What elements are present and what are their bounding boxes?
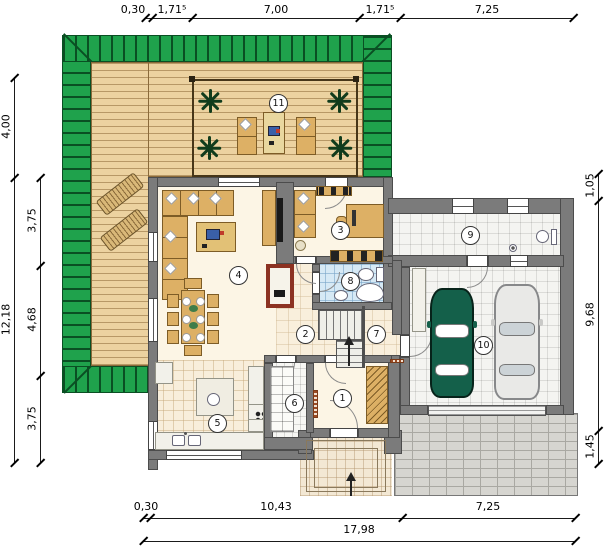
dim-label: 1,71⁵	[358, 3, 402, 16]
wall	[400, 405, 428, 415]
wall	[388, 355, 400, 438]
dim-label: 10,43	[254, 500, 298, 513]
door-office-hall	[296, 256, 316, 264]
bookshelf	[330, 250, 383, 262]
wardrobe	[366, 366, 388, 424]
fridge	[155, 362, 173, 384]
room-label-11: 11	[269, 94, 288, 113]
car-windshield	[499, 322, 535, 336]
room-label-8: 8	[341, 272, 360, 291]
car-green	[430, 288, 474, 398]
plate	[196, 315, 205, 324]
floor-garage	[404, 259, 564, 409]
car-mirror	[473, 321, 477, 328]
dim-label: 1,45	[584, 425, 597, 469]
driveway	[394, 413, 578, 496]
potted-plant	[328, 136, 352, 160]
radiator	[313, 390, 318, 418]
wall	[392, 260, 402, 335]
stove	[248, 404, 264, 420]
door-utility	[467, 255, 488, 267]
dimension-line-total	[143, 541, 575, 542]
kitchen-sink	[188, 435, 201, 446]
dim-label: 1,05	[584, 164, 597, 208]
dim-label: 7,00	[254, 3, 298, 16]
window	[452, 198, 474, 214]
room-label-10: 10	[474, 336, 493, 355]
dim-label: 0,30	[124, 500, 168, 513]
stair-railing	[362, 306, 365, 368]
plate	[182, 297, 191, 306]
dim-label: 3,75	[26, 397, 39, 441]
dimension-line-bottom	[143, 518, 575, 519]
bidet	[334, 290, 348, 301]
room-label-9: 9	[461, 226, 480, 245]
window	[507, 198, 529, 214]
desk-monitor	[352, 210, 356, 226]
small-object	[269, 141, 274, 145]
car-mirror	[539, 319, 543, 326]
room-label-3: 3	[331, 221, 350, 240]
dim-label: 9,68	[584, 293, 597, 337]
dimension-line-left-inner	[40, 177, 41, 463]
entrance-arrow-head	[346, 472, 356, 481]
tv-screen	[277, 198, 283, 242]
car-body	[430, 288, 474, 398]
car-body	[494, 284, 540, 400]
floor-plan-canvas: 1 2 3 4 5 6 7 8 9 10 11 0,30 1,71⁵ 7,00 …	[0, 0, 609, 548]
radiator	[390, 359, 404, 363]
dining-chair	[167, 294, 179, 308]
dining-chair	[207, 330, 219, 344]
bathroom-sink	[356, 283, 384, 302]
dining-chair	[167, 312, 179, 326]
plate	[196, 297, 205, 306]
dining-chair	[184, 345, 202, 356]
window	[218, 177, 260, 187]
small-object	[276, 129, 280, 133]
serving-dish	[189, 322, 198, 329]
plate	[196, 333, 205, 342]
entrance-arrow-line	[350, 481, 352, 496]
small-object	[220, 231, 224, 235]
wall	[312, 302, 392, 310]
wall	[388, 198, 566, 214]
dim-label-total: 17,98	[337, 523, 381, 536]
floor-drain	[509, 244, 517, 252]
car-windshield	[435, 324, 469, 338]
kitchen-sink	[172, 435, 185, 446]
car-rear-window	[499, 364, 535, 376]
potted-plant	[198, 89, 222, 113]
room-label-7: 7	[367, 325, 386, 344]
island-bowl	[207, 393, 220, 406]
wall	[264, 355, 276, 363]
window	[148, 232, 158, 262]
dim-label: 7,25	[466, 500, 510, 513]
terrace-glass-door	[148, 298, 158, 342]
small-object	[202, 244, 207, 248]
stairs-upper-flight	[318, 310, 364, 340]
door-garage	[400, 335, 410, 357]
dimension-line-left-outer	[14, 77, 15, 463]
room-label-4: 4	[229, 266, 248, 285]
wall	[296, 355, 325, 363]
stairs-arrow-line	[348, 344, 350, 366]
dining-chair	[167, 330, 179, 344]
room-label-1: 1	[333, 389, 352, 408]
bookshelf	[316, 186, 352, 196]
potted-plant	[327, 89, 351, 113]
dimension-line-right	[598, 173, 599, 464]
kitchen-counter-right	[248, 366, 264, 432]
dining-chair	[207, 312, 219, 326]
dim-label: 0,30	[111, 3, 155, 16]
toilet-tank	[551, 229, 557, 245]
window	[166, 450, 242, 460]
faucet	[184, 432, 187, 435]
pergola-post	[189, 76, 195, 82]
door-pantry	[276, 355, 296, 363]
dim-label: 7,25	[465, 3, 509, 16]
car-silver	[494, 284, 540, 400]
window	[510, 255, 528, 267]
plate	[182, 333, 191, 342]
wall	[400, 357, 410, 408]
porch-step	[314, 448, 378, 488]
room-label-5: 5	[208, 414, 227, 433]
toilet-bowl	[536, 230, 549, 243]
garage-door	[428, 405, 546, 416]
toilet-tank	[376, 267, 384, 282]
wall	[148, 177, 392, 187]
car-rear-window	[435, 364, 469, 376]
dining-chair	[184, 278, 202, 289]
potted-plant	[197, 136, 221, 160]
fireplace	[266, 264, 294, 308]
dim-label: 12,18	[0, 298, 13, 342]
dim-label: 1,71⁵	[150, 3, 194, 16]
tv-cabinet	[262, 190, 276, 246]
laptop	[206, 229, 220, 240]
serving-dish	[189, 305, 198, 312]
car-mirror	[491, 319, 495, 326]
wall	[560, 198, 574, 415]
pergola-post	[353, 76, 359, 82]
room-label-6: 6	[285, 394, 304, 413]
fireplace-firebox	[274, 290, 285, 297]
dining-chair	[207, 294, 219, 308]
wall	[546, 405, 564, 415]
front-door	[330, 428, 358, 438]
dim-label: 3,75	[26, 199, 39, 243]
dim-label: 4,68	[26, 298, 39, 342]
grass-border-top	[62, 35, 392, 62]
garage-workbench	[412, 268, 426, 332]
grass-border-left	[62, 35, 91, 393]
room-label-2: 2	[296, 325, 315, 344]
floor-lamp	[295, 240, 306, 251]
car-mirror	[427, 321, 431, 328]
toilet-bowl	[358, 268, 374, 281]
dim-label: 4,00	[0, 105, 13, 149]
